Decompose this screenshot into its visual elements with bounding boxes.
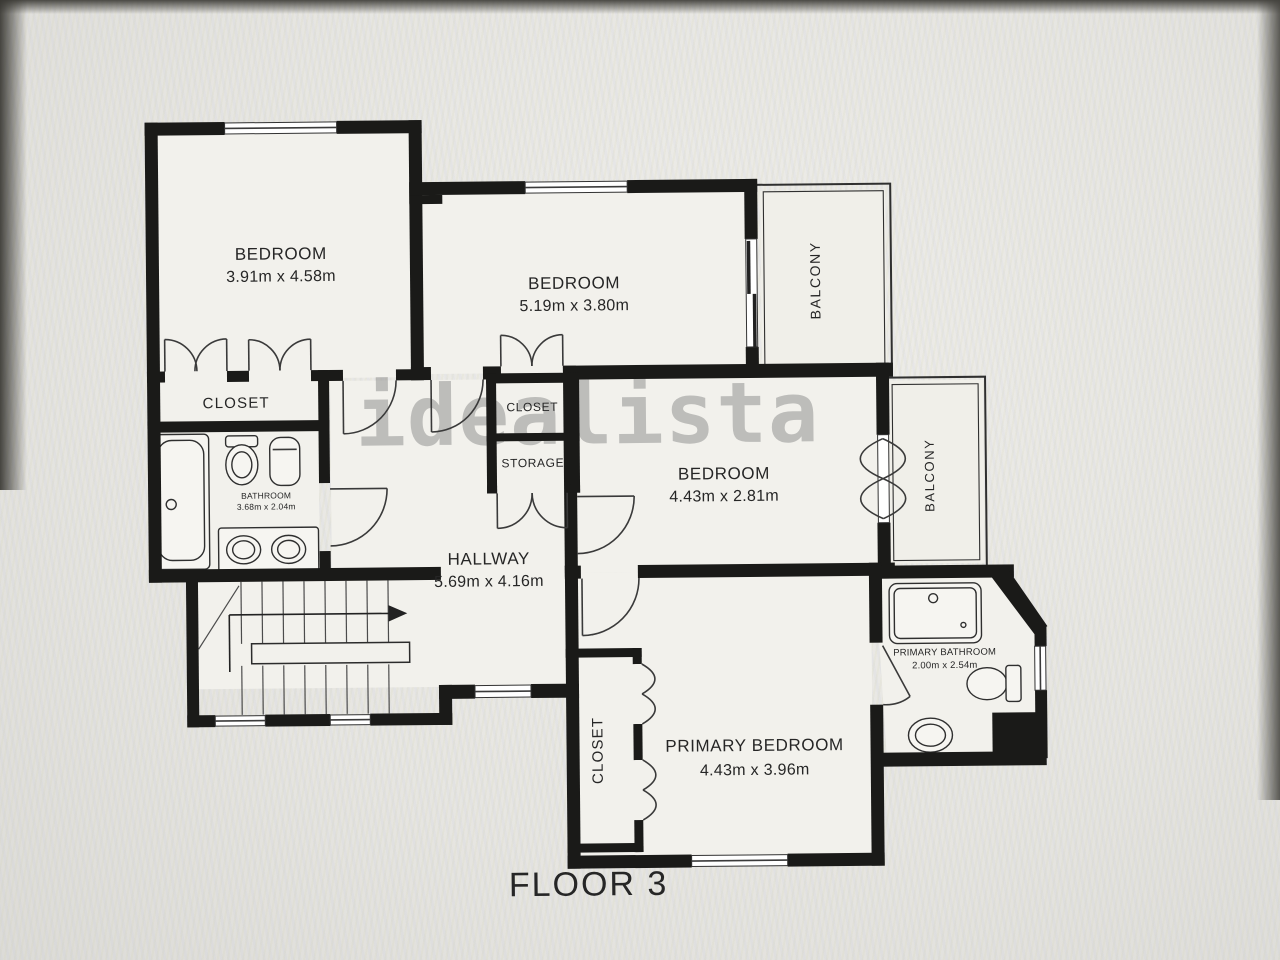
sink-primary (908, 718, 952, 752)
closet3-label: CLOSET (589, 717, 607, 784)
bathroom-label: BATHROOM (241, 490, 291, 500)
toilet (226, 436, 258, 485)
toilet-primary (967, 665, 1021, 702)
bedroom3-label: BEDROOM (678, 464, 770, 484)
window-primary-bedroom (692, 855, 788, 867)
bedroom1-dims: 3.91m x 4.58m (226, 268, 336, 286)
primary-bedroom-dims: 4.43m x 3.96m (700, 761, 810, 779)
closet1-label: CLOSET (203, 395, 270, 413)
stair-divider (252, 642, 410, 664)
bathroom-dims: 3.68m x 2.04m (237, 501, 296, 512)
floor-plan-tilt-wrapper: idealista (0, 0, 1280, 960)
bedroom2-label: BEDROOM (528, 273, 620, 293)
double-sink-vanity (218, 527, 318, 572)
bedroom2-dims: 5.19m x 3.80m (519, 297, 629, 315)
window-hallway (475, 685, 531, 698)
primary-bathroom-dims: 2.00m x 2.54m (912, 660, 978, 672)
window-primary-bathroom (1035, 646, 1046, 690)
window-bedroom2-top (525, 181, 627, 193)
floor-plan-photo: idealista (0, 0, 1280, 960)
storage-label: STORAGE (501, 456, 564, 471)
window-stairs-right (330, 715, 370, 725)
balcony-right-label: BALCONY (922, 438, 938, 511)
hallway-dims: 5.69m x 4.16m (434, 573, 544, 591)
floor-title: FLOOR 3 (509, 865, 669, 905)
window-bedroom1-top (225, 122, 337, 134)
closet2-label: CLOSET (506, 400, 558, 414)
shower (889, 583, 982, 644)
bidet (270, 437, 300, 485)
primary-bedroom-label: PRIMARY BEDROOM (665, 735, 844, 756)
balcony-top-label: BALCONY (807, 241, 824, 319)
primary-bathroom-label: PRIMARY BATHROOM (893, 647, 996, 659)
hallway-label: HALLWAY (448, 549, 530, 569)
bedroom1-label: BEDROOM (235, 244, 327, 264)
floor-plan-drawing: idealista (0, 0, 1280, 960)
sliding-door-balcony-top (746, 239, 758, 347)
window-stairs-left (215, 716, 265, 726)
bedroom3-dims: 4.43m x 2.81m (669, 488, 779, 506)
